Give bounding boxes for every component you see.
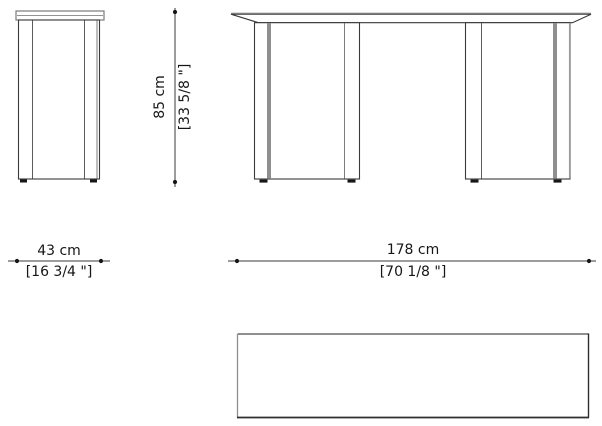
width-dimension-dot-left — [235, 259, 239, 263]
front-view-left-leg-foot-left — [260, 180, 268, 183]
front-view-right-leg-gray-band — [553, 23, 557, 179]
depth-dimension-dot-right — [99, 259, 103, 263]
depth-metric-label: 43 cm — [37, 244, 81, 258]
front-view-right-leg-foot-left — [471, 180, 479, 183]
height-dimension-dot-bottom — [173, 180, 177, 184]
depth-dimension — [8, 259, 110, 263]
width-imperial-label: [70 1/8 "] — [380, 265, 447, 279]
front-view-left-leg-foot-right — [348, 180, 356, 183]
drawing-linework — [0, 0, 602, 426]
side-view — [16, 11, 104, 183]
width-dimension-dot-right — [587, 259, 591, 263]
top-view-fill — [238, 334, 589, 418]
front-view-tabletop — [231, 14, 591, 23]
front-view-left-leg-gray-band — [267, 23, 271, 179]
width-dimension — [228, 259, 596, 263]
height-metric-label: 85 cm — [153, 75, 167, 119]
width-metric-label: 178 cm — [387, 243, 440, 257]
height-imperial-label: [33 5/8 "] — [178, 64, 192, 131]
side-view-foot-right — [90, 180, 97, 183]
depth-imperial-label: [16 3/4 "] — [26, 265, 93, 279]
top-view — [237, 334, 589, 418]
front-view — [231, 13, 591, 182]
side-view-foot-left — [20, 180, 27, 183]
front-view-right-leg-foot-right — [554, 180, 562, 183]
technical-drawing-canvas: 85 cm [33 5/8 "] 43 cm [16 3/4 "] 178 cm… — [0, 0, 602, 426]
depth-dimension-dot-left — [15, 259, 19, 263]
height-dimension-dot-top — [173, 10, 177, 14]
side-view-leg-panel — [19, 20, 100, 179]
